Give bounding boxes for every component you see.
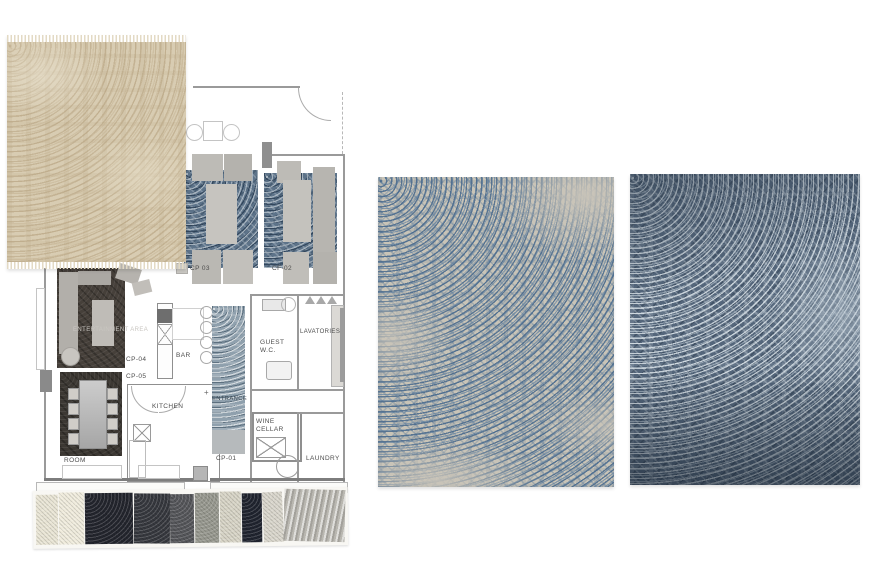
fabric-swatch-light-boucle <box>219 491 241 542</box>
code-label-cf02: CF-02 <box>272 265 292 273</box>
fabric-swatch-cream-panel <box>36 495 58 545</box>
hook-mark <box>327 296 337 304</box>
chair <box>186 124 203 141</box>
bar-counter-block <box>157 309 172 323</box>
fabric-swatch-ivory-panel <box>58 492 84 544</box>
fabric-swatch-silver-stripe <box>283 489 345 542</box>
dining-chair <box>107 433 118 445</box>
wall <box>298 412 345 414</box>
code-label-cp03: CP 03 <box>190 265 210 273</box>
fabric-swatch-navy-solid <box>242 493 262 542</box>
hook-mark <box>305 296 315 304</box>
chair <box>223 124 240 141</box>
wall <box>193 86 300 88</box>
plan-cross-marker: + <box>204 388 209 398</box>
rug-fringe-top <box>7 35 186 42</box>
fabric-swatch-pale-weave <box>262 492 284 543</box>
code-label-cp05: CP-05 <box>126 373 146 381</box>
room-label-kitchen: KITCHEN <box>152 403 183 411</box>
room-label-room: ROOM <box>64 457 86 465</box>
runner-end <box>212 430 245 454</box>
guest-wc-line2: W.C. <box>260 347 284 355</box>
wall-block <box>193 466 208 481</box>
rug-selection-mood-board: CP 03 CF-02 ENTERTAINMENT AREA CP-04 CP-… <box>0 0 870 580</box>
guest-wc-line1: GUEST <box>260 339 284 347</box>
bar-cabinet <box>157 324 173 345</box>
room-label-entertainment: ENTERTAINMENT AREA <box>73 327 148 335</box>
wall-block <box>40 370 52 392</box>
dining-chair <box>68 418 79 430</box>
room-label-guest-wc: GUEST W.C. <box>260 339 284 355</box>
wine-cellar-line2: CELLAR <box>256 426 284 434</box>
fabric-swatch-strip <box>33 487 349 549</box>
plan-rug-cp01-runner <box>212 306 245 430</box>
dining-chair <box>107 388 118 400</box>
fabric-swatch-charcoal-boucle <box>134 493 170 543</box>
sofa <box>206 184 237 244</box>
beige-rug-pile <box>7 42 186 262</box>
toilet <box>266 361 292 380</box>
sofa <box>223 250 253 284</box>
washer <box>276 455 299 478</box>
dining-chair <box>107 418 118 430</box>
room-label-bar: BAR <box>176 352 191 360</box>
fabric-swatch-graphite-tweed <box>170 494 194 543</box>
wall <box>210 478 345 481</box>
armchair <box>132 279 153 296</box>
sofa <box>59 272 78 354</box>
dining-chair <box>107 403 118 415</box>
wall <box>250 389 345 391</box>
wine-cellar-line1: WINE <box>256 418 284 426</box>
fixture <box>281 297 296 312</box>
pouf <box>61 347 80 366</box>
room-label-entrance: ENTRANCE <box>212 396 245 403</box>
dining-chair <box>68 433 79 445</box>
code-label-cp04: CP-04 <box>126 356 146 364</box>
ottoman <box>92 300 114 346</box>
sofa <box>224 154 252 181</box>
sofa <box>313 252 337 284</box>
wall <box>262 154 345 156</box>
column <box>262 142 272 168</box>
room-label-wine-cellar: WINE CELLAR <box>256 418 284 434</box>
kitchen-sideboard <box>138 465 180 479</box>
dining-table <box>79 380 107 449</box>
table <box>203 121 223 141</box>
window <box>36 288 45 370</box>
door-arc <box>298 88 331 121</box>
sideboard <box>62 465 122 479</box>
sofa <box>192 154 223 181</box>
dining-chair <box>68 403 79 415</box>
room-label-laundry: LAUNDRY <box>306 455 340 463</box>
lav-counter-edge <box>340 308 344 382</box>
dining-chair <box>68 388 79 400</box>
light-blue-rug-sample <box>378 177 614 487</box>
room-label-lavatories: LAVATORIES <box>300 329 340 337</box>
sofa <box>283 180 311 242</box>
wine-rack <box>256 437 286 458</box>
code-label-cp01: CP-01 <box>216 455 236 463</box>
beige-rug-sample <box>7 35 186 269</box>
hook-mark <box>316 296 326 304</box>
fabric-swatch-grey-boucle <box>195 493 219 543</box>
dashed-opening <box>342 92 343 154</box>
rug-fringe-bottom <box>7 262 186 269</box>
dark-blue-rug-sample <box>630 174 860 485</box>
fabric-swatch-navy-boucle <box>85 493 133 545</box>
wall <box>297 294 299 390</box>
sofa <box>78 271 111 285</box>
